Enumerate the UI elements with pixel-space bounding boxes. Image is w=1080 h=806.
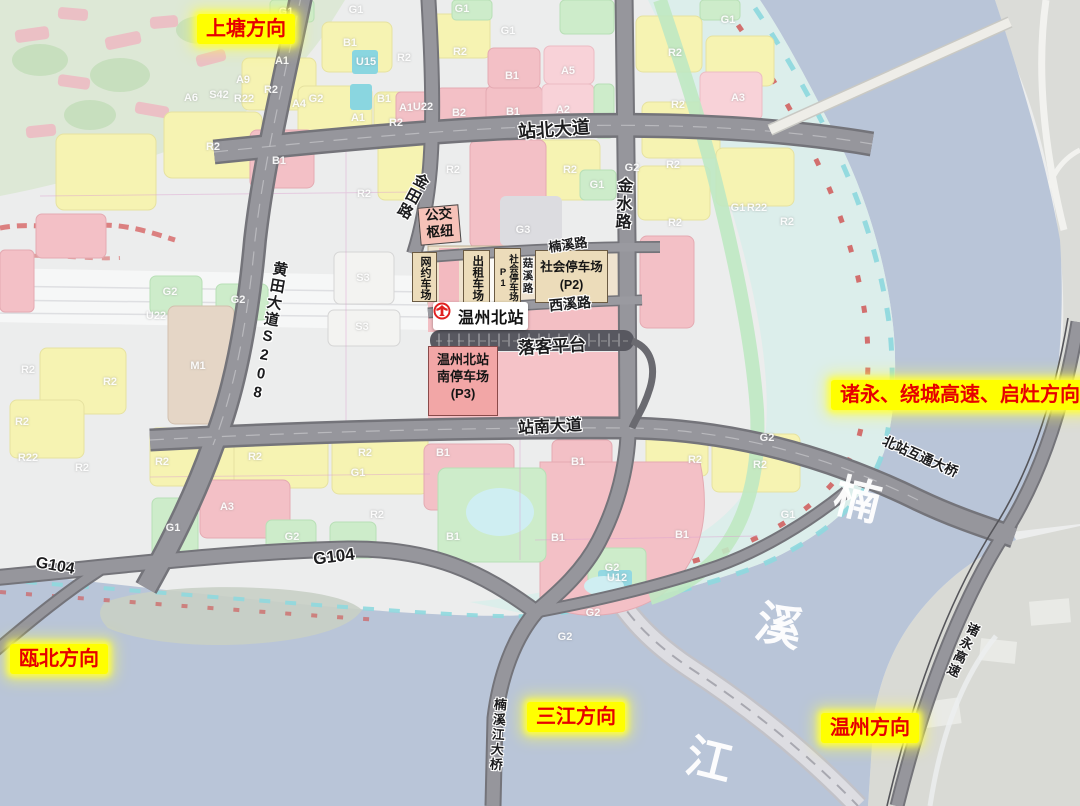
road-label: 西溪路 [548,295,591,313]
zone-label: G2 [586,607,601,619]
road-label: 黄田大道S208 [248,260,289,405]
zone-label: R2 [397,52,411,64]
zone-label: G2 [760,432,775,444]
zone-label: R2 [15,416,29,428]
zone-label: R2 [668,47,682,59]
ride-hail-parking-box: 网约车场 [412,252,437,302]
zone-label: A6 [184,92,198,104]
zone-label: B1 [272,155,286,167]
zone-label: G2 [163,286,178,298]
road-label: 菇溪路 [521,257,532,295]
china-railway-icon [437,307,455,325]
zone-label: R2 [103,376,117,388]
road-label: 诸永高速 [943,620,981,680]
zone-label: G2 [309,93,324,105]
direction-label: 上塘方向 [197,14,295,44]
zone-label: G3 [516,224,531,236]
zone-label: U22 [413,101,433,113]
zone-label: R2 [446,164,460,176]
zone-label: R2 [248,451,262,463]
zone-label: R22 [18,452,38,464]
zone-label: B1 [343,37,357,49]
zone-label: B1 [377,93,391,105]
zone-label: G1 [501,25,516,37]
road-label: 北站互通大桥 [880,434,960,480]
zone-label: R2 [357,188,371,200]
zone-label: R2 [688,454,702,466]
zone-label: R2 [75,462,89,474]
taxi-parking-box: 出租车场 [463,250,490,303]
zone-label: B1 [551,532,565,544]
river-name-char: 溪 [750,585,811,660]
zone-label: M1 [190,360,205,372]
zone-label: B1 [505,70,519,82]
zone-label: R2 [370,509,384,521]
zone-label: R2 [453,46,467,58]
road-label: G104 [34,555,75,578]
zone-label: R2 [671,99,685,111]
zone-label: R2 [389,117,403,129]
zone-label: A1 [275,55,289,67]
road-label: G104 [312,546,355,569]
zone-label: R2 [668,217,682,229]
zone-label: G1 [166,522,181,534]
zone-label: R2 [753,459,767,471]
zone-label: R2 [155,456,169,468]
direction-label: 诸永、绕城高速、启灶方向 [831,380,1080,410]
zone-label: A9 [236,74,250,86]
road-label: 楠溪江大桥 [488,697,507,773]
zone-label: A3 [220,501,234,513]
zone-label: R22 [234,93,254,105]
road-label: 站南大道 [518,418,583,438]
zone-label: R22 [747,202,767,214]
zone-label: G1 [721,14,736,26]
zone-label: S42 [209,89,229,101]
road-label: 金水路 [611,177,631,232]
zone-label: S3 [355,321,368,333]
zone-label: A1 [351,112,365,124]
zone-label: R2 [264,84,278,96]
zone-label: G1 [455,3,470,15]
zone-label: G2 [285,531,300,543]
zone-label: U15 [356,56,376,68]
zone-label: B2 [452,107,466,119]
river-name-char: 江 [680,719,741,794]
zone-label: R2 [358,447,372,459]
public-parking-p1-box: 社会停车场P1 [494,248,521,305]
river-name-char: 楠 [828,459,889,534]
zone-label: B1 [506,106,520,118]
zone-label: S3 [356,272,369,284]
bus-hub-box: 公交 枢纽 [417,204,461,245]
station-label-box: 温州北站 [433,302,528,330]
labels-layer: 公交 枢纽 网约车场 出租车场 社会停车场P1 社会停车场 (P2) 温州北站 … [0,0,1080,806]
map-canvas: 公交 枢纽 网约车场 出租车场 社会停车场P1 社会停车场 (P2) 温州北站 … [0,0,1080,806]
direction-label: 三江方向 [527,702,625,732]
south-parking-p3-box: 温州北站 南停车场 (P3) [428,346,498,416]
zone-label: G2 [625,162,640,174]
direction-label: 温州方向 [821,713,919,743]
zone-label: R2 [666,159,680,171]
station-name: 温州北站 [458,304,524,328]
zone-label: A4 [292,98,306,110]
zone-label: A1 [399,102,413,114]
zone-label: U22 [146,310,166,322]
zone-label: B1 [675,529,689,541]
zone-label: U12 [607,572,627,584]
zone-label: G1 [351,467,366,479]
zone-label: G1 [590,179,605,191]
direction-label: 瓯北方向 [10,644,108,674]
zone-label: A5 [561,65,575,77]
zone-label: B1 [446,531,460,543]
zone-label: G2 [558,631,573,643]
zone-label: R2 [780,216,794,228]
zone-label: A3 [731,92,745,104]
zone-label: B1 [571,456,585,468]
zone-label: R2 [21,364,35,376]
zone-label: R2 [206,141,220,153]
zone-label: A2 [556,104,570,116]
dropoff-platform-label: 落客平台 [518,336,587,357]
zone-label: R2 [563,164,577,176]
zone-label: G2 [231,294,246,306]
zone-label: G1 [781,509,796,521]
zone-label: B1 [436,447,450,459]
zone-label: G1 [731,202,746,214]
road-label: 站北大道 [517,118,590,142]
zone-label: G1 [349,4,364,16]
